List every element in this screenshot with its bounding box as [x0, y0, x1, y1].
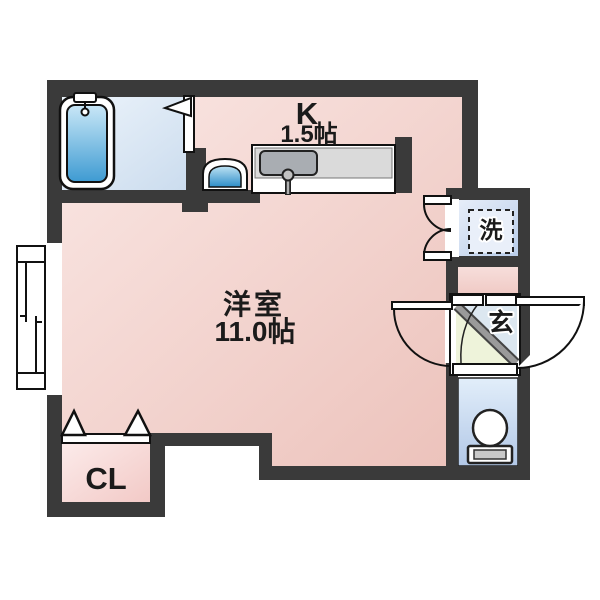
- wall-bath-bottom: [47, 190, 260, 203]
- wall-laundry-bottom: [446, 256, 530, 267]
- kitchen-counter: [252, 145, 395, 195]
- bathtub-faucet-bar: [74, 93, 96, 102]
- window-cap-top: [17, 246, 45, 262]
- wash-basin: [203, 159, 247, 190]
- wall-bottom-closet: [47, 502, 165, 517]
- living-room-size-label: 11.0帖: [215, 316, 296, 347]
- closet-label: CL: [85, 461, 126, 496]
- bathtub-faucet-head: [82, 109, 89, 116]
- floor-plan: K 1.5帖 洋室 11.0帖 CL 洗 玄: [0, 0, 600, 600]
- entrance-door-leaf: [516, 297, 584, 305]
- wash-basin-bowl: [209, 166, 241, 187]
- genkan-frame-top-left: [452, 295, 483, 305]
- window-frame: [17, 246, 45, 389]
- wall-left-lower: [47, 395, 62, 517]
- bathtub-basin: [67, 105, 107, 182]
- toilet-bowl: [473, 410, 507, 446]
- entrance-label: 玄: [488, 308, 513, 337]
- wall-bottom-right: [259, 466, 530, 480]
- wall-pillar: [182, 193, 208, 212]
- wall-counter-stub: [395, 137, 412, 193]
- sink-faucet-head: [283, 170, 294, 181]
- laundry-door-leaf-lower: [424, 252, 451, 260]
- kitchen-size-label: 1.5帖: [280, 121, 337, 148]
- toilet: [468, 410, 512, 463]
- genkan-frame-top-right: [486, 295, 519, 305]
- wall-top: [47, 80, 478, 97]
- genkan-frame-bottom: [453, 364, 517, 375]
- wall-right-upper: [462, 80, 478, 198]
- bathtub: [60, 93, 114, 189]
- hall-floor: [458, 267, 518, 294]
- wall-closet-right: [150, 434, 165, 517]
- laundry-label: 洗: [480, 217, 503, 243]
- window: [17, 246, 45, 389]
- wall-laundry-top: [446, 188, 530, 200]
- wall-bottom-left: [150, 433, 272, 446]
- laundry-door-opening: [445, 199, 459, 257]
- laundry-door-leaf-upper: [424, 196, 451, 204]
- main-door-leaf: [392, 302, 452, 309]
- entrance-area: [450, 294, 584, 375]
- toilet-tank-lid: [474, 450, 506, 459]
- window-cap-bottom: [17, 373, 45, 389]
- floor-plan-drawing: K 1.5帖 洋室 11.0帖 CL 洗 玄: [0, 0, 600, 600]
